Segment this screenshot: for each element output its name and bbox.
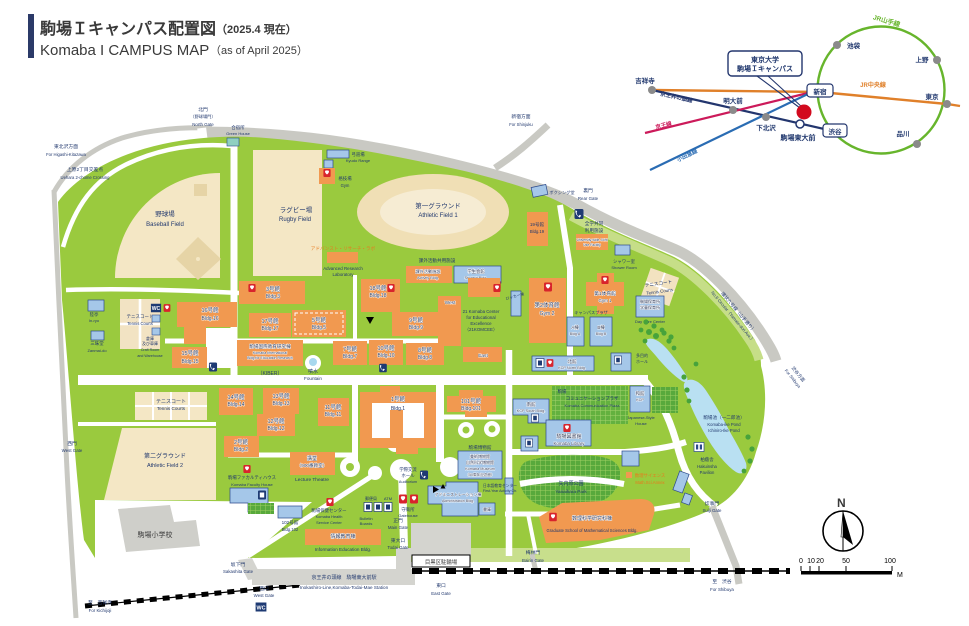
svg-text:Ichiniro-Ike Pond: Ichiniro-Ike Pond <box>708 428 740 433</box>
svg-text:3号館: 3号館 <box>266 285 281 293</box>
svg-text:Kyudo Range: Kyudo Range <box>346 158 371 163</box>
svg-text:10: 10 <box>807 558 815 565</box>
svg-text:ラグビー場: ラグビー場 <box>280 205 313 214</box>
svg-text:Bldg.B: Bldg.B <box>596 332 607 336</box>
svg-text:Main Gate: Main Gate <box>388 525 409 530</box>
svg-text:Komaba Faculty House: Komaba Faculty House <box>231 482 273 487</box>
svg-text:14号館: 14号館 <box>227 393 245 401</box>
svg-text:東北沢方面: 東北沢方面 <box>54 143 78 150</box>
svg-text:守衛所: 守衛所 <box>401 506 415 513</box>
svg-text:駒場池（一二郎池）: 駒場池（一二郎池） <box>703 414 744 421</box>
svg-text:Lecture Theatre: Lecture Theatre <box>295 477 329 483</box>
svg-text:Bldg.11: Bldg.11 <box>325 412 342 418</box>
svg-text:First-Year Activity Ctr.: First-Year Activity Ctr. <box>483 489 517 493</box>
svg-text:1号館: 1号館 <box>391 395 406 403</box>
svg-text:Japanese-Style: Japanese-Style <box>627 415 655 420</box>
svg-text:East: East <box>478 353 488 359</box>
svg-text:正門: 正門 <box>393 518 403 524</box>
svg-text:House: House <box>635 421 647 426</box>
svg-text:Gatehouse: Gatehouse <box>398 513 418 518</box>
svg-text:情報教育棟: 情報教育棟 <box>330 533 355 540</box>
svg-text:Inokashiro-Line,Komaba-Todai-M: Inokashiro-Line,Komaba-Todai-Mae Station <box>300 585 389 590</box>
svg-text:For Shibuya: For Shibuya <box>710 587 734 592</box>
svg-text:for Educational: for Educational <box>466 315 495 320</box>
svg-text:第2体育館: 第2体育館 <box>534 301 560 309</box>
svg-text:For Shinjuku: For Shinjuku <box>509 122 533 127</box>
svg-text:坂下門: 坂下門 <box>231 561 246 568</box>
svg-text:新宿: 新宿 <box>814 87 828 96</box>
svg-text:和館: 和館 <box>636 390 645 397</box>
svg-text:For Higashi-Kitazawa: For Higashi-Kitazawa <box>46 152 86 157</box>
svg-text:Athletic Field 2: Athletic Field 2 <box>147 463 183 469</box>
svg-text:Math.Sci.Annex: Math.Sci.Annex <box>635 480 665 485</box>
svg-text:弓道場: 弓道場 <box>351 151 365 158</box>
svg-text:Bldg.2: Bldg.2 <box>234 447 248 453</box>
svg-text:三昧堂: 三昧堂 <box>90 340 104 347</box>
svg-text:50: 50 <box>842 558 850 565</box>
svg-text:M: M <box>897 572 903 579</box>
svg-text:コミュニケーションプラザ: コミュニケーションプラザ <box>566 395 619 402</box>
svg-text:合宿所: 合宿所 <box>231 124 245 131</box>
svg-text:駒場博物館: 駒場博物館 <box>469 444 492 451</box>
svg-text:シャワー室: シャワー室 <box>613 258 636 264</box>
svg-text:Bldg.18: Bldg.18 <box>370 293 387 299</box>
svg-text:アドミニストレーション棟: アドミニストレーション棟 <box>435 492 482 497</box>
svg-text:Rear Gate: Rear Gate <box>578 196 599 201</box>
svg-text:Bldg.14: Bldg.14 <box>228 402 245 408</box>
svg-text:京王井の頭線 駒場東大前駅: 京王井の頭線 駒場東大前駅 <box>311 574 376 581</box>
svg-text:駒場ファカルティハウス: 駒場ファカルティハウス <box>228 474 276 481</box>
svg-text:20: 20 <box>816 558 824 565</box>
svg-text:Bldg.101: Bldg.101 <box>461 406 481 412</box>
svg-text:A棟: A棟 <box>571 324 579 331</box>
svg-text:ATM: ATM <box>384 496 392 501</box>
svg-text:West: West <box>445 300 457 306</box>
svg-text:Service Center: Service Center <box>316 520 342 525</box>
svg-text:数理サイエンス: 数理サイエンス <box>635 472 666 479</box>
svg-text:Excellence: Excellence <box>470 321 492 326</box>
svg-text:自然科学博物館: 自然科学博物館 <box>466 459 494 465</box>
svg-text:第1体育館: 第1体育館 <box>594 290 616 297</box>
svg-text:JR中央線: JR中央線 <box>860 81 886 89</box>
svg-text:野球場: 野球場 <box>155 209 175 218</box>
svg-text:（as of April 2025）: （as of April 2025） <box>210 44 308 57</box>
svg-text:駒場Ｉキャンパス配置図: 駒場Ｉキャンパス配置図 <box>40 19 216 38</box>
svg-text:テニスコート: テニスコート <box>156 399 186 405</box>
svg-text:郵便局: 郵便局 <box>365 495 377 501</box>
svg-text:南館: 南館 <box>526 401 536 408</box>
svg-text:及び車庫: 及び車庫 <box>142 340 158 346</box>
svg-text:池袋: 池袋 <box>847 41 861 50</box>
svg-text:Tennis Courts: Tennis Courts <box>157 406 186 411</box>
svg-text:21 Komaba Center: 21 Komaba Center <box>463 309 500 314</box>
svg-text:Bldg.5: Bldg.5 <box>312 325 326 331</box>
svg-text:炊事門: 炊事門 <box>705 500 720 507</box>
svg-text:（野球場門）: （野球場門） <box>190 113 215 120</box>
svg-text:Todai Gate: Todai Gate <box>387 545 409 550</box>
svg-text:ホール: ホール <box>636 359 648 364</box>
svg-text:Laboratory: Laboratory <box>333 272 355 277</box>
svg-text:上野: 上野 <box>916 55 930 64</box>
svg-text:KCP North Bldg.: KCP North Bldg. <box>558 366 586 370</box>
svg-text:Bldg.13: Bldg.13 <box>273 401 290 407</box>
svg-text:Green House: Green House <box>226 131 251 136</box>
svg-text:至 吉祥寺: 至 吉祥寺 <box>88 599 112 606</box>
svg-text:至 渋谷: 至 渋谷 <box>712 578 731 585</box>
svg-text:East Gate: East Gate <box>431 591 451 596</box>
svg-text:Komaba-ike Pond: Komaba-ike Pond <box>707 422 741 427</box>
svg-text:N: N <box>837 496 846 510</box>
svg-text:東大口: 東大口 <box>391 537 406 544</box>
svg-text:and Warehouse: and Warehouse <box>137 354 162 358</box>
svg-text:駒場保健センター: 駒場保健センター <box>311 507 346 514</box>
svg-text:（900番教室）: （900番教室） <box>297 462 328 469</box>
svg-text:Graduate School of Mathematica: Graduate School of Mathematical Sciences… <box>546 528 637 533</box>
svg-text:100: 100 <box>884 558 896 565</box>
svg-text:Athletic Field 1: Athletic Field 1 <box>418 213 458 219</box>
svg-text:KCP South Bldg.: KCP South Bldg. <box>517 409 545 413</box>
svg-text:全学共同: 全学共同 <box>585 220 604 227</box>
svg-text:Bldg.19: Bldg.19 <box>530 229 545 234</box>
svg-text:矢内原公園: 矢内原公園 <box>558 480 583 487</box>
svg-text:Auditorium: Auditorium <box>399 480 417 484</box>
svg-text:Bldg.102: Bldg.102 <box>282 527 299 532</box>
svg-text:Bldg.1: Bldg.1 <box>391 406 405 412</box>
svg-text:東京: 東京 <box>926 92 940 101</box>
svg-text:課外活動施設: 課外活動施設 <box>415 268 441 275</box>
svg-text:Bldg.A: Bldg.A <box>570 332 581 336</box>
svg-text:日本語教育センター: 日本語教育センター <box>483 483 517 488</box>
svg-text:In-ryo: In-ryo <box>89 318 100 323</box>
svg-text:数理科学研究科棟: 数理科学研究科棟 <box>572 515 612 522</box>
svg-text:下北沢: 下北沢 <box>756 123 776 132</box>
svg-text:北門: 北門 <box>198 106 208 113</box>
svg-text:（21KOMCEE）: （21KOMCEE） <box>465 327 498 332</box>
svg-text:13号館: 13号館 <box>272 392 290 400</box>
svg-text:学際交流: 学際交流 <box>399 466 417 473</box>
svg-text:目黒区駐輪場: 目黒区駐輪場 <box>425 558 458 566</box>
svg-text:Bldg.9: Bldg.9 <box>409 325 423 331</box>
svg-text:裏門: 裏門 <box>583 187 593 194</box>
svg-text:駒場Ｉキャンパス: 駒場Ｉキャンパス <box>736 64 793 73</box>
svg-text:For Kichijoji: For Kichijoji <box>89 608 112 613</box>
svg-text:Yanaihara Park: Yanaihara Park <box>555 489 587 494</box>
svg-text:Use Facility: Use Facility <box>583 243 601 247</box>
svg-text:利用施設: 利用施設 <box>585 227 604 234</box>
svg-text:ホール: ホール <box>401 473 415 478</box>
svg-text:アドバンスト・リサーチ・ラボ: アドバンスト・リサーチ・ラボ <box>311 245 376 252</box>
svg-text:Tennis Courts: Tennis Courts <box>127 321 153 326</box>
svg-text:University-wide Joint: University-wide Joint <box>576 238 607 242</box>
svg-text:多目的: 多目的 <box>636 352 648 358</box>
svg-text:学童保育所: 学童保育所 <box>640 304 660 310</box>
svg-text:西口: 西口 <box>259 586 269 592</box>
svg-text:（50周年記念館）: （50周年記念館） <box>465 472 494 477</box>
svg-text:美術博物館: 美術博物館 <box>470 453 490 459</box>
svg-text:品川: 品川 <box>897 129 910 138</box>
svg-text:0: 0 <box>799 558 803 565</box>
svg-text:Bldg.10: Bldg.10 <box>378 353 395 359</box>
svg-text:10号館: 10号館 <box>377 344 395 352</box>
svg-text:Advanced Research: Advanced Research <box>323 266 363 271</box>
svg-text:駒場: 駒場 <box>558 388 567 395</box>
svg-text:駒場図書館: 駒場図書館 <box>556 433 581 440</box>
svg-text:東京大学: 東京大学 <box>751 55 779 64</box>
svg-text:Shower Room: Shower Room <box>611 265 637 270</box>
svg-text:Suiji Gate: Suiji Gate <box>702 508 722 513</box>
svg-text:（KIBER）: （KIBER） <box>257 371 282 377</box>
svg-text:101号館: 101号館 <box>461 397 482 405</box>
svg-text:Gym 1: Gym 1 <box>599 298 612 303</box>
svg-text:B棟: B棟 <box>597 324 605 331</box>
svg-text:書庫: 書庫 <box>483 506 491 512</box>
svg-text:Pavilion: Pavilion <box>700 470 715 475</box>
svg-text:駒場小学校: 駒場小学校 <box>138 530 173 539</box>
svg-text:5号館: 5号館 <box>312 316 327 324</box>
svg-text:Activity Bldg.: Activity Bldg. <box>417 276 439 280</box>
svg-text:ボクシング堂: ボクシング堂 <box>549 189 574 196</box>
svg-text:明大前: 明大前 <box>723 96 743 105</box>
svg-text:11号館: 11号館 <box>325 403 342 411</box>
svg-text:Komaba Museum: Komaba Museum <box>465 467 495 471</box>
svg-text:Komaba Library: Komaba Library <box>554 441 586 446</box>
svg-text:Zanmai-do: Zanmai-do <box>87 348 107 353</box>
svg-text:8号館: 8号館 <box>418 346 433 354</box>
svg-text:Bldg.16: Bldg.16 <box>202 316 219 322</box>
svg-text:West Gate: West Gate <box>254 593 275 598</box>
svg-text:Fountain: Fountain <box>304 376 322 381</box>
svg-text:Hakuinsha: Hakuinsha <box>697 464 717 469</box>
svg-text:Rugby Field: Rugby Field <box>279 217 311 223</box>
svg-text:北館: 北館 <box>567 358 577 365</box>
svg-text:16号館: 16号館 <box>201 306 219 314</box>
svg-text:Bldg.for Education Research: Bldg.for Education Research <box>247 356 293 360</box>
svg-text:東口: 東口 <box>436 582 446 589</box>
svg-text:Gym 2: Gym 2 <box>540 311 555 317</box>
svg-text:12号館: 12号館 <box>267 417 285 425</box>
svg-text:West Gate: West Gate <box>62 448 83 453</box>
svg-text:Bldg.15: Bldg.15 <box>182 359 199 365</box>
svg-text:15号館: 15号館 <box>181 349 199 357</box>
svg-text:102号館: 102号館 <box>282 519 299 526</box>
svg-text:Komaba Communication Plaza: Komaba Communication Plaza <box>565 403 621 408</box>
svg-text:19号館: 19号館 <box>530 221 545 228</box>
svg-text:西門: 西門 <box>67 441 77 447</box>
svg-text:Information Education Bldg.: Information Education Bldg. <box>315 547 371 552</box>
svg-text:陸亭: 陸亭 <box>90 311 99 318</box>
svg-text:Craft Room: Craft Room <box>141 348 159 352</box>
svg-text:Komaba International: Komaba International <box>253 351 287 355</box>
svg-text:North Gate: North Gate <box>192 122 214 127</box>
svg-text:第二グラウンド: 第二グラウンド <box>144 452 186 460</box>
svg-text:渋谷: 渋谷 <box>829 127 843 136</box>
svg-text:Komaba I CAMPUS MAP: Komaba I CAMPUS MAP <box>40 42 209 59</box>
svg-text:9号館: 9号館 <box>409 316 424 324</box>
svg-text:駒場国際教育研究棟: 駒場国際教育研究棟 <box>249 343 291 350</box>
svg-text:Bldg.3: Bldg.3 <box>266 294 280 300</box>
svg-text:上原2丁目交差点: 上原2丁目交差点 <box>67 166 103 173</box>
svg-text:第一グラウンド: 第一グラウンド <box>415 201 461 210</box>
svg-text:2号館: 2号館 <box>234 438 249 446</box>
svg-text:Day Care Center: Day Care Center <box>635 319 666 324</box>
svg-text:（2025.4 現在）: （2025.4 現在） <box>216 22 297 36</box>
svg-text:Administration Bldg.: Administration Bldg. <box>442 499 474 503</box>
svg-text:17号館: 17号館 <box>261 317 279 325</box>
svg-text:Bldg.17: Bldg.17 <box>262 326 279 332</box>
svg-text:課外活動共用施設: 課外活動共用施設 <box>419 257 456 264</box>
svg-text:Bldg.8: Bldg.8 <box>418 355 432 361</box>
svg-text:駒場保育所: 駒場保育所 <box>640 298 660 304</box>
svg-text:Baseball Field: Baseball Field <box>146 222 184 228</box>
svg-text:Uehara 2-chome Crossing: Uehara 2-chome Crossing <box>61 175 111 180</box>
svg-text:梅林門: 梅林門 <box>526 549 541 556</box>
svg-text:Bldg.12: Bldg.12 <box>268 426 285 432</box>
svg-text:講堂: 講堂 <box>307 455 317 462</box>
svg-text:Komaba Health: Komaba Health <box>316 514 343 519</box>
svg-text:Sakashita Gate: Sakashita Gate <box>223 569 254 574</box>
svg-text:駒場東大前: 駒場東大前 <box>780 133 816 142</box>
svg-text:Gym: Gym <box>341 183 350 188</box>
svg-text:7号館: 7号館 <box>343 345 358 353</box>
svg-text:新宿方面: 新宿方面 <box>511 113 530 120</box>
svg-text:18号館: 18号館 <box>369 284 387 292</box>
svg-text:吉祥寺: 吉祥寺 <box>635 76 655 85</box>
svg-text:柏蔭舎: 柏蔭舎 <box>700 456 714 463</box>
svg-text:噴水: 噴水 <box>308 368 318 375</box>
svg-text:Bairin Gate: Bairin Gate <box>522 558 545 563</box>
svg-text:Boards: Boards <box>360 521 373 526</box>
svg-text:Bldg.7: Bldg.7 <box>343 354 357 360</box>
svg-text:KCP: KCP <box>636 398 644 402</box>
svg-text:学生会館: 学生会館 <box>467 268 485 275</box>
svg-text:格技場: 格技場 <box>338 175 352 182</box>
